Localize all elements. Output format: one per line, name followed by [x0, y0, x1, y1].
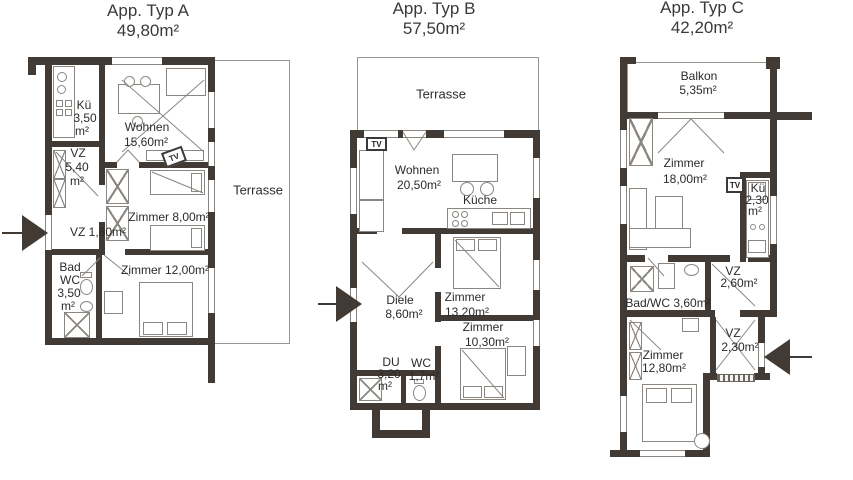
plan-a-area: 49,80m²: [117, 21, 179, 41]
window: [208, 92, 215, 128]
room-label-wohnen: Wohnen: [395, 163, 439, 177]
shower: [64, 312, 90, 338]
sofa: [359, 200, 384, 232]
room-label-diele-area: 8,60m²: [385, 307, 422, 321]
stove-burner: [461, 211, 468, 218]
chair: [124, 76, 135, 87]
plan-c-area: 42,20m²: [671, 18, 733, 38]
wall: [45, 338, 215, 345]
room-label-vz2-area: 2,30m²: [721, 340, 758, 354]
room-label-bad-area: 3,50: [57, 286, 80, 300]
window: [208, 180, 215, 212]
entrance-arrow: [764, 339, 790, 375]
pillow: [191, 228, 202, 248]
room-label-zimmer1: Zimmer: [445, 290, 486, 304]
door-sill-hatch: [717, 374, 755, 382]
stove-burner: [759, 224, 765, 230]
window: [208, 268, 215, 313]
window: [640, 450, 685, 457]
room-label-terrasse: Terrasse: [416, 87, 466, 102]
entrance-arrow: [22, 215, 48, 251]
room-label-zimmer1: Zimmer 8,00m²: [128, 210, 209, 224]
plan-c-title: App. Typ C: [660, 0, 744, 18]
pillow: [191, 173, 202, 192]
plan-a-title: App. Typ A: [107, 1, 189, 21]
wall: [435, 234, 441, 268]
room-label-vz1-unit: m²: [70, 174, 84, 188]
wall: [350, 322, 357, 410]
wardrobe-x: [53, 179, 66, 208]
sofa: [166, 68, 206, 96]
room-label-vz1-area: 2,60m²: [720, 276, 757, 290]
pillow: [463, 386, 482, 398]
wall: [105, 162, 117, 168]
room-label-kueche-area: 3,50: [73, 111, 96, 125]
sink: [57, 85, 66, 94]
room-label-vz1: VZ: [70, 146, 85, 160]
room-label-zimmer2-area: 10,30m²: [465, 335, 509, 349]
sofa: [629, 228, 691, 248]
wall: [620, 310, 715, 317]
dining-table: [118, 84, 160, 114]
toilet-tank: [80, 272, 92, 278]
room-label-kueche-unit: m²: [748, 204, 762, 218]
window: [620, 396, 627, 432]
room-label-vz2: VZ 1,80m²: [70, 225, 126, 239]
stove-burner: [65, 109, 72, 116]
wall: [208, 128, 215, 142]
room-label-balkon: Balkon: [681, 69, 718, 83]
window: [770, 196, 777, 244]
room-label-wc-area: 1,7m²: [409, 369, 440, 383]
toilet: [80, 279, 93, 295]
window: [350, 168, 357, 214]
wardrobe-x: [53, 150, 66, 179]
sink: [492, 212, 508, 225]
balcony-door: [658, 112, 724, 119]
washbasin: [80, 301, 93, 312]
wall: [28, 65, 36, 75]
wall: [45, 250, 52, 345]
wardrobe-x: [629, 352, 642, 380]
wall: [96, 255, 102, 338]
plan-b-title: App. Typ B: [393, 0, 476, 19]
room-label-bad: Bad: [59, 260, 80, 274]
sink: [57, 72, 67, 82]
window: [112, 57, 162, 65]
stove-burner: [65, 100, 72, 107]
room-label-wohnen-area: 15,60m²: [124, 135, 168, 149]
wall: [99, 65, 105, 141]
stove-burner: [750, 224, 756, 230]
wardrobe-x: [629, 322, 642, 350]
room-label-kueche-unit: m²: [75, 124, 89, 138]
room-label-bad-wc: WC: [60, 273, 80, 287]
wall: [740, 172, 777, 178]
wardrobe-x: [106, 169, 129, 204]
room-label-diele: Diele: [386, 293, 413, 307]
tv-box: TV: [726, 177, 744, 193]
entrance-arrow: [336, 286, 362, 322]
wardrobe-x: [629, 118, 653, 166]
room-label-zimmer2-area: 12,80m²: [642, 361, 686, 375]
shower: [630, 266, 654, 292]
stove-burner: [56, 109, 63, 116]
window: [533, 320, 540, 346]
room-label-du-unit: m²: [378, 379, 392, 393]
stove-burner: [452, 220, 459, 227]
wall: [766, 57, 780, 69]
room-label-zimmer1: Zimmer: [664, 156, 705, 170]
wall: [770, 262, 777, 317]
wall: [350, 130, 364, 138]
room-label-wc: WC: [411, 356, 431, 370]
sink: [748, 240, 766, 253]
wall: [426, 130, 444, 138]
room-label-wohnen: Wohnen: [125, 120, 169, 134]
washbasin: [684, 264, 699, 276]
wall: [208, 313, 215, 338]
window: [620, 130, 627, 168]
wall: [724, 112, 777, 119]
wall: [504, 130, 540, 138]
window: [533, 158, 540, 198]
window: [444, 130, 504, 138]
wall: [45, 65, 52, 215]
sofa: [359, 150, 384, 200]
wall: [703, 373, 717, 380]
room-label-wohnen-area: 20,50m²: [397, 178, 441, 192]
pillow: [671, 388, 692, 403]
wardrobe: [507, 346, 526, 376]
dining-table: [452, 154, 498, 182]
pillow: [167, 322, 187, 335]
stove-burner: [56, 100, 63, 107]
chair: [140, 76, 151, 87]
room-label-kueche: Kü: [77, 98, 92, 112]
wall: [45, 249, 103, 255]
floorplan-canvas: TV: [0, 0, 853, 480]
terrace-door: [403, 130, 426, 138]
terrace-outline: [213, 60, 290, 344]
room-label-kueche: Küche: [463, 193, 497, 207]
room-label-vz1-area: 5,40: [65, 160, 88, 174]
room-label-balkon-area: 5,35m²: [679, 83, 716, 97]
pillow: [484, 386, 503, 398]
toilet: [413, 385, 426, 401]
wardrobe: [104, 291, 123, 314]
room-label-terrasse: Terrasse: [233, 183, 283, 198]
room-label-zimmer1-area: 18,00m²: [663, 172, 707, 186]
wall: [208, 166, 215, 180]
entrance-arrow-line: [788, 356, 812, 358]
pillow: [143, 322, 163, 335]
window: [533, 260, 540, 290]
room-label-vz2: VZ: [725, 326, 740, 340]
room-label-zimmer1-area: 13,20m²: [445, 305, 489, 319]
chair: [694, 433, 710, 449]
terrace-door: [208, 142, 215, 166]
wall: [208, 65, 215, 92]
wall: [710, 317, 716, 380]
wall: [620, 255, 645, 262]
sink: [510, 212, 525, 225]
room-label-zimmer2: Zimmer 12,00m²: [121, 263, 209, 277]
pillow: [646, 388, 667, 403]
bathtub: [658, 263, 675, 289]
wall: [422, 410, 430, 438]
stove-burner: [461, 220, 468, 227]
stove-burner: [452, 211, 459, 218]
room-label-zimmer2: Zimmer: [463, 320, 504, 334]
wall: [401, 376, 406, 403]
room-label-zimmer2: Zimmer: [643, 348, 684, 362]
wall: [668, 255, 730, 262]
wall: [610, 450, 622, 457]
tv-box: TV: [366, 137, 387, 151]
wall: [350, 403, 540, 410]
wall: [208, 345, 215, 383]
pillow: [456, 239, 475, 251]
table: [655, 196, 683, 229]
room-label-bad: Bad/WC 3,60m²: [625, 296, 710, 310]
window: [620, 186, 627, 224]
pillow: [478, 239, 497, 251]
washbasin: [682, 318, 699, 332]
room-label-bad-unit: m²: [61, 299, 75, 313]
plan-b-area: 57,50m²: [403, 19, 465, 39]
